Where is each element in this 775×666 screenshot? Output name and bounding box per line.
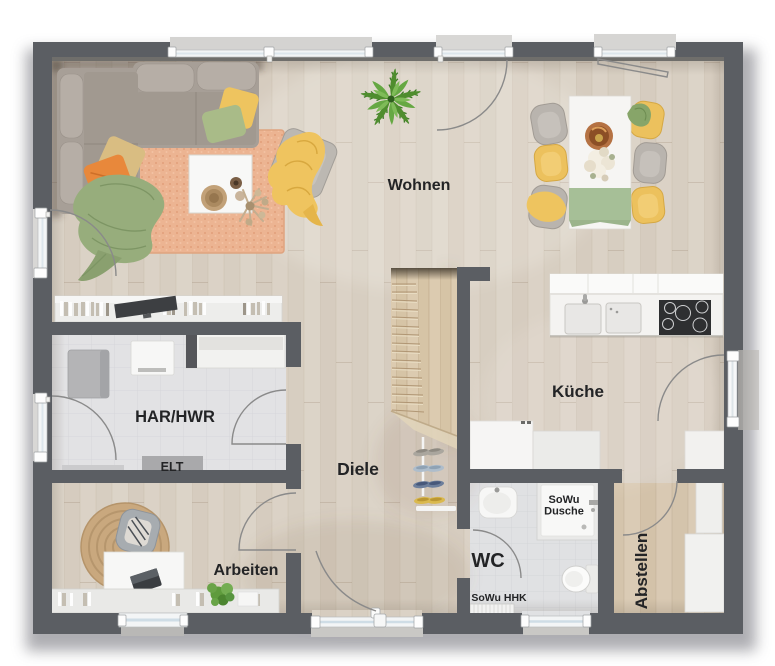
svg-text:ELT: ELT xyxy=(161,460,184,474)
svg-text:Arbeiten: Arbeiten xyxy=(214,562,279,579)
svg-text:Wohnen: Wohnen xyxy=(388,177,451,194)
svg-text:SoWu HHK: SoWu HHK xyxy=(471,592,527,604)
svg-text:Küche: Küche xyxy=(552,382,604,401)
svg-text:WC: WC xyxy=(471,550,504,572)
svg-text:Abstellen: Abstellen xyxy=(632,533,651,610)
svg-text:SoWu: SoWu xyxy=(549,494,580,506)
svg-text:Dusche: Dusche xyxy=(544,506,584,518)
svg-text:HAR/HWR: HAR/HWR xyxy=(135,408,215,426)
svg-text:Diele: Diele xyxy=(337,459,379,479)
